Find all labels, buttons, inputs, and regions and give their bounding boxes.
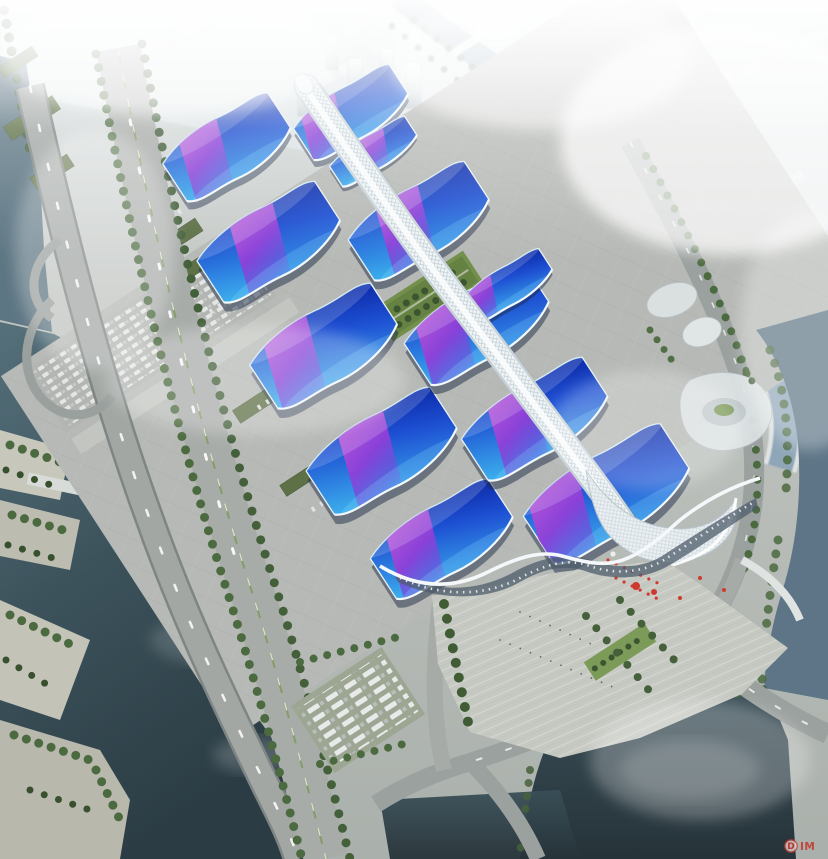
south-channel	[380, 790, 580, 859]
watermark-letter: D	[787, 842, 794, 852]
watermark: D IM	[785, 840, 816, 853]
scene-canvas: D IM	[0, 0, 828, 859]
aerial-rendering: D IM	[0, 0, 828, 859]
white-sphere-sculpture	[610, 551, 615, 556]
watermark-text: IM	[800, 841, 815, 853]
